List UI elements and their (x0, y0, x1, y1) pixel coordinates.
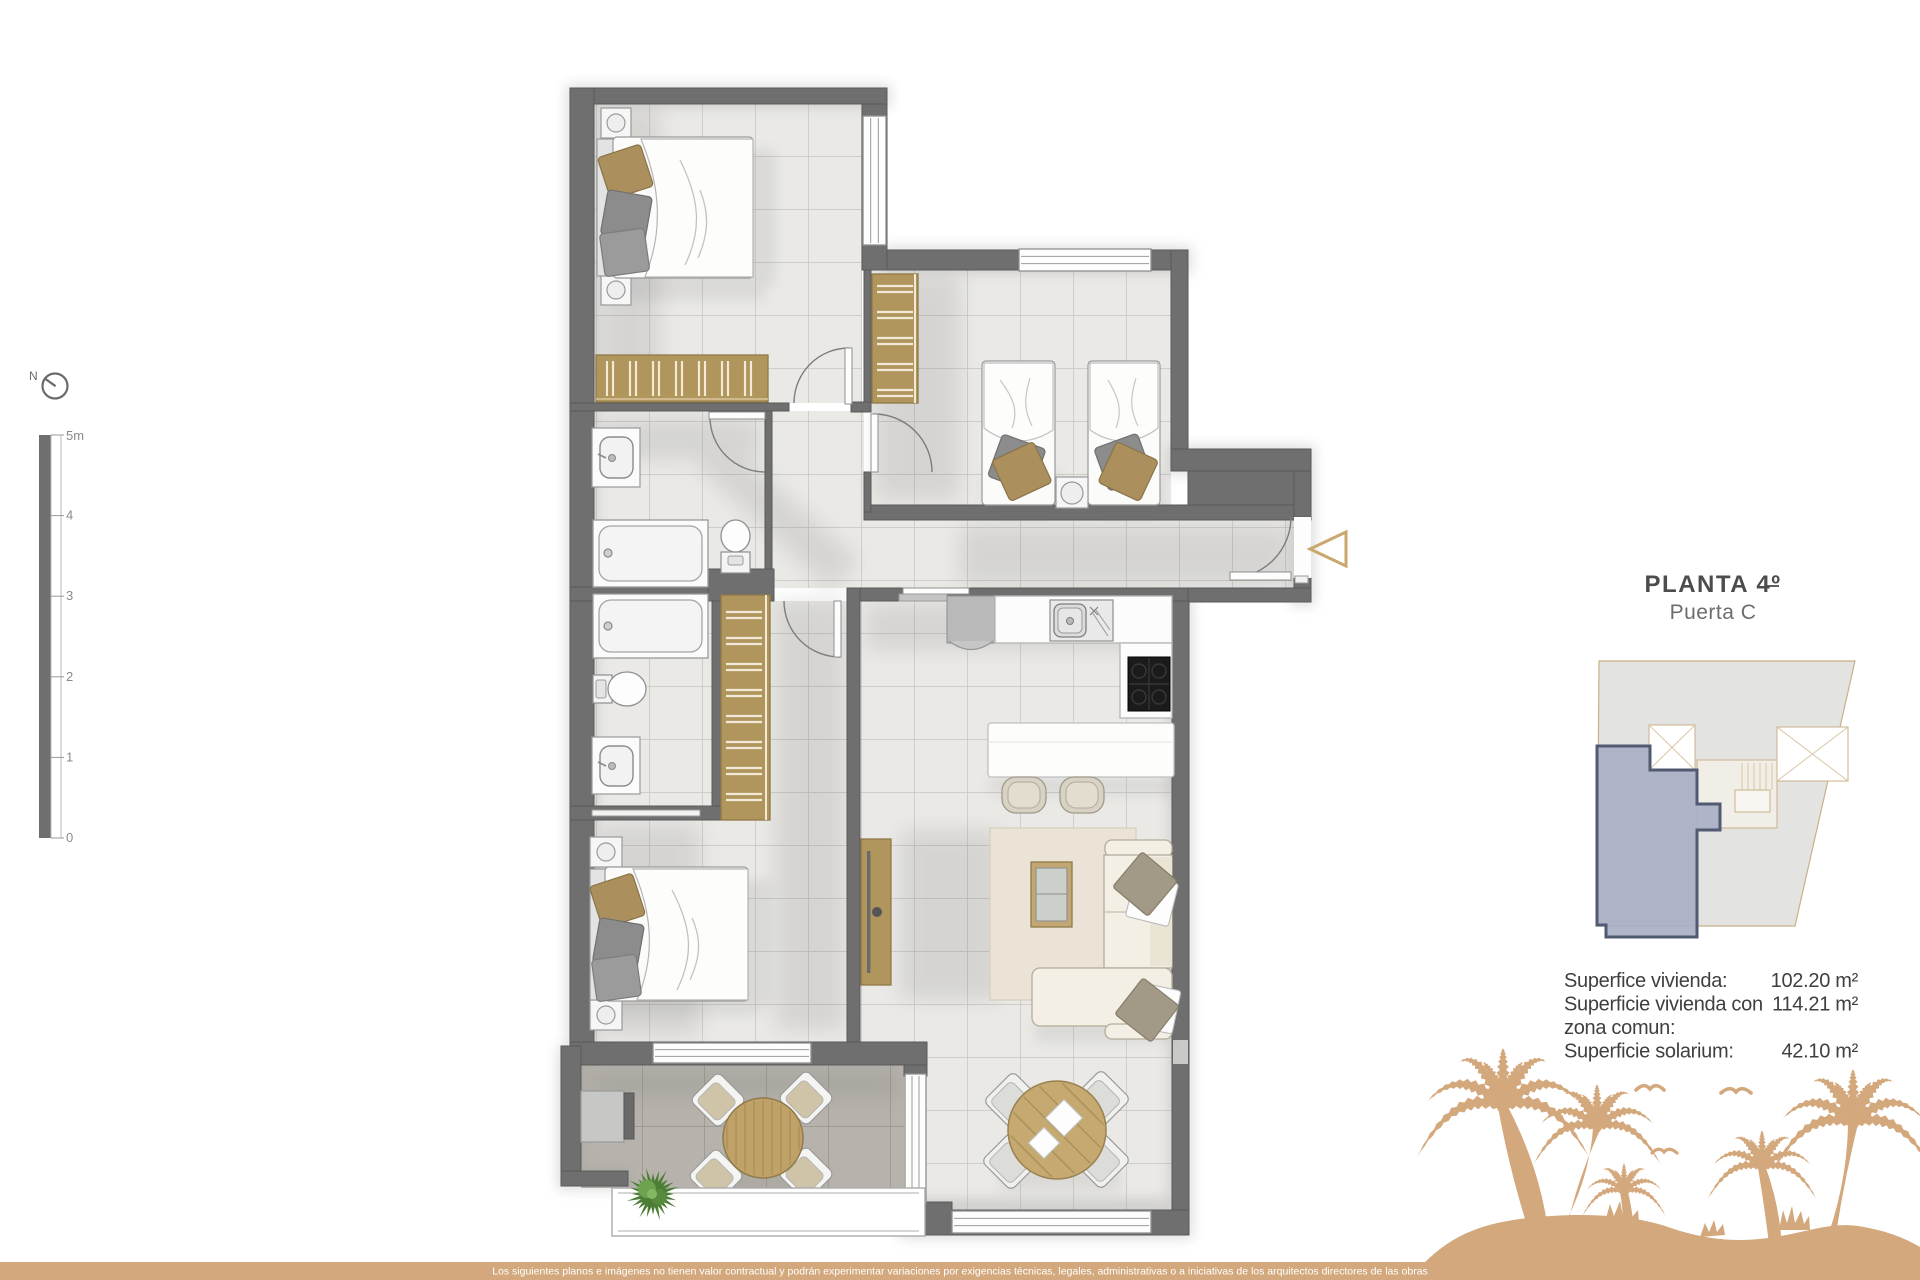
svg-text:Superficie solarium:: Superficie solarium: (1564, 1041, 1734, 1063)
svg-text:4: 4 (66, 508, 73, 523)
svg-text:Superficie vivienda con: Superficie vivienda con (1564, 994, 1763, 1016)
svg-text:3: 3 (66, 588, 73, 603)
svg-text:N: N (29, 369, 38, 383)
svg-text:102.20 m²: 102.20 m² (1771, 970, 1859, 992)
svg-text:Superfice vivienda:: Superfice vivienda: (1564, 970, 1727, 992)
svg-text:zona comun:: zona comun: (1564, 1017, 1675, 1039)
svg-text:Los siguientes planos e imágen: Los siguientes planos e imágenes no tien… (492, 1266, 1428, 1278)
svg-text:PLANTA 4º: PLANTA 4º (1645, 571, 1782, 598)
svg-text:1: 1 (66, 749, 73, 764)
svg-text:42.10 m²: 42.10 m² (1781, 1041, 1858, 1063)
svg-text:114.21 m²: 114.21 m² (1772, 994, 1859, 1016)
svg-text:2: 2 (66, 669, 73, 684)
svg-text:5m: 5m (66, 428, 84, 443)
svg-text:0: 0 (66, 830, 73, 845)
svg-text:Puerta C: Puerta C (1670, 601, 1757, 624)
